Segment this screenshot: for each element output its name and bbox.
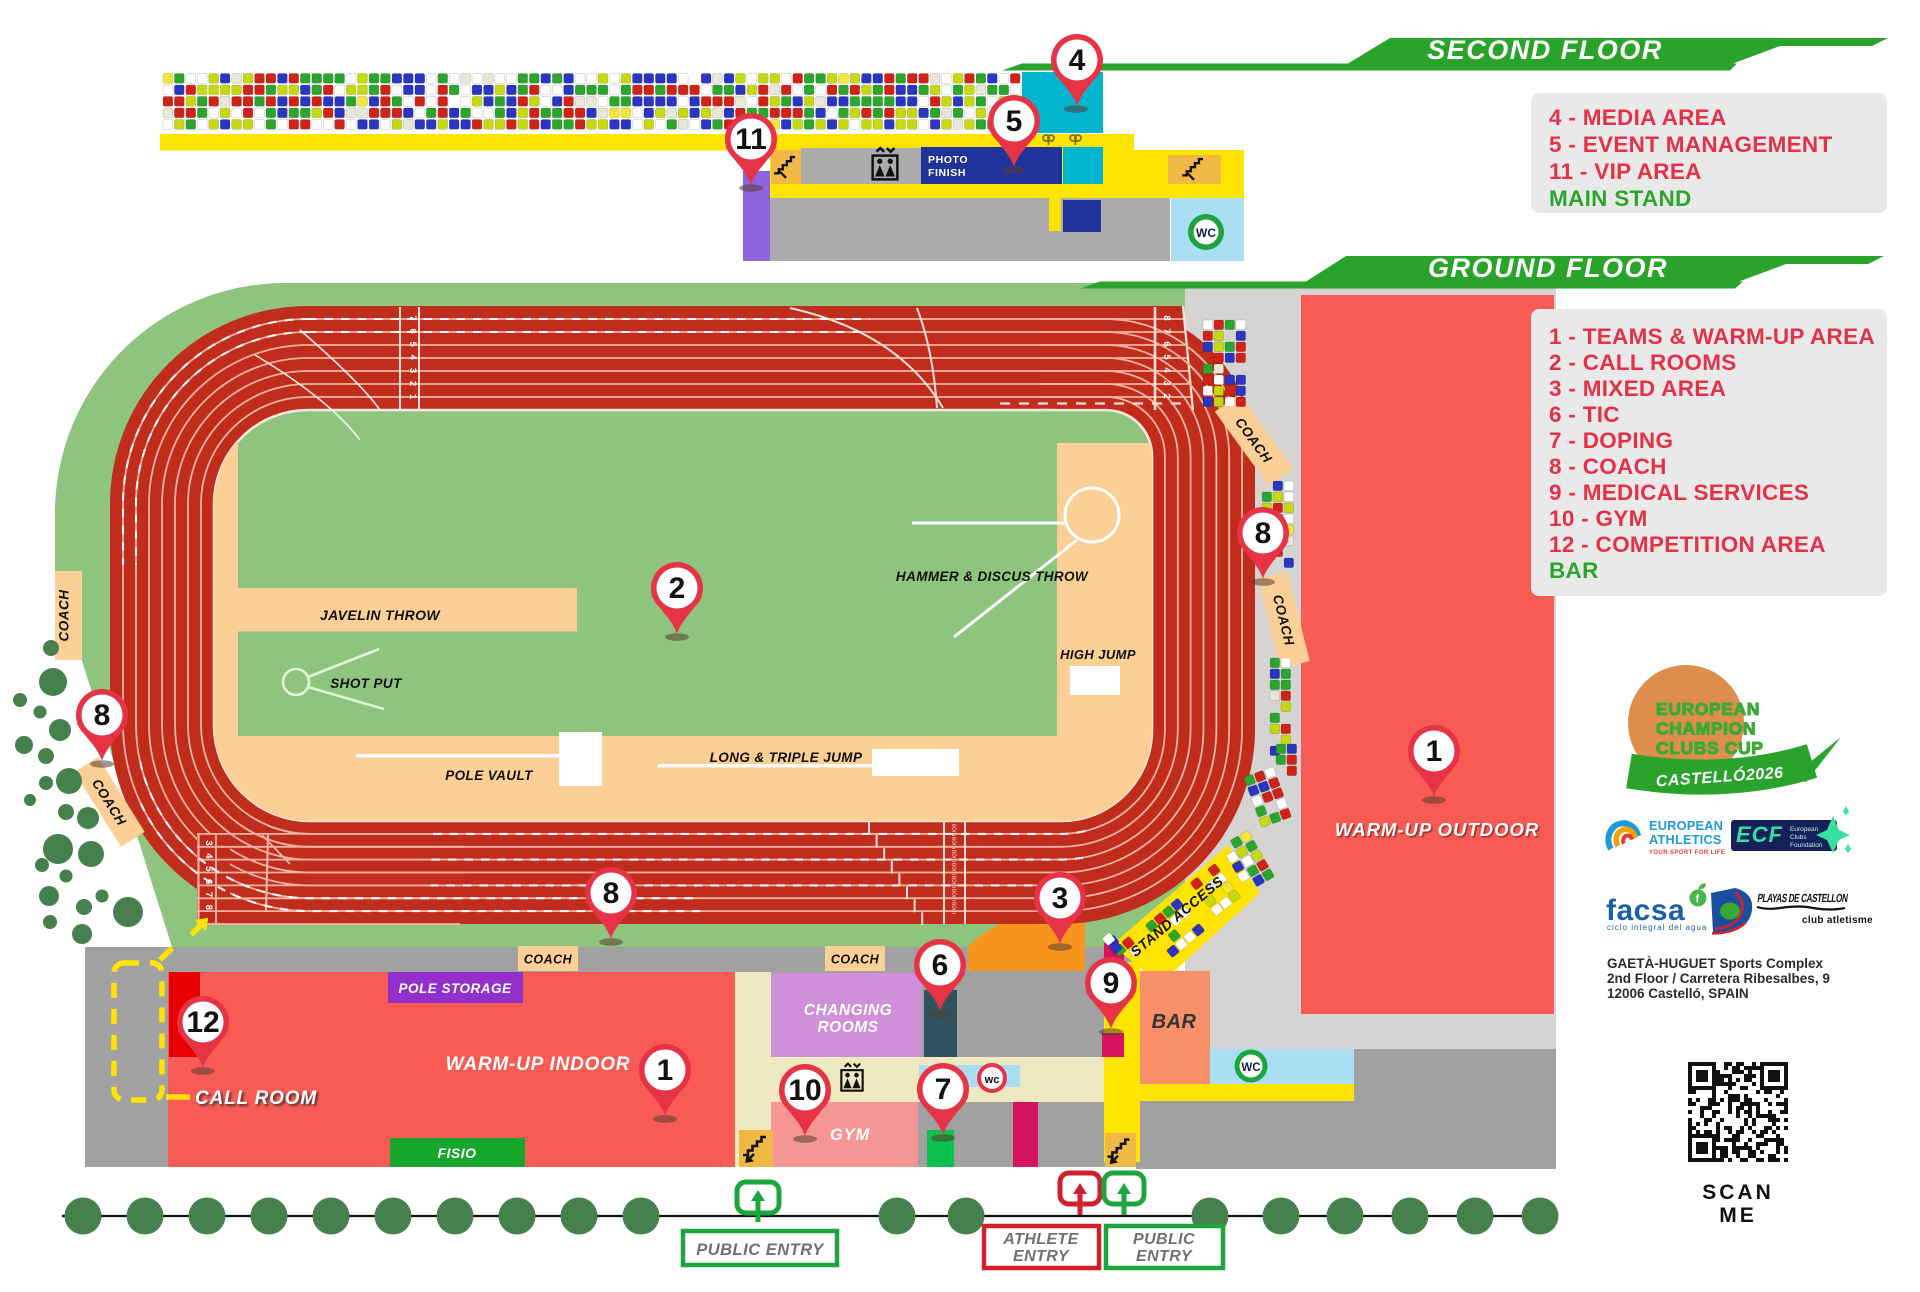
svg-text:1 - TEAMS & WARM-UP AREA: 1 - TEAMS & WARM-UP AREA — [1549, 324, 1875, 349]
svg-text:LONG & TRIPLE JUMP: LONG & TRIPLE JUMP — [710, 750, 863, 765]
svg-text:WC: WC — [1241, 1062, 1260, 1074]
svg-text:1: 1 — [407, 394, 418, 400]
svg-text:5: 5 — [1006, 105, 1023, 138]
svg-text:4: 4 — [1161, 367, 1172, 373]
svg-text:GROUND FLOOR: GROUND FLOOR — [1428, 253, 1668, 283]
svg-text:3: 3 — [1161, 380, 1172, 385]
svg-text:60m: 60m — [950, 889, 957, 902]
svg-text:3: 3 — [1052, 882, 1069, 915]
svg-text:7: 7 — [1161, 328, 1172, 333]
svg-text:60m: 60m — [950, 902, 957, 915]
svg-text:HIGH JUMP: HIGH JUMP — [1060, 647, 1136, 662]
svg-text:5: 5 — [203, 866, 214, 872]
svg-text:6: 6 — [932, 949, 949, 982]
svg-text:SHOT PUT: SHOT PUT — [330, 676, 403, 691]
svg-text:ATHLETICS: ATHLETICS — [1649, 832, 1722, 847]
svg-text:YOUR SPORT FOR LIFE: YOUR SPORT FOR LIFE — [1649, 850, 1725, 856]
svg-text:5 - EVENT MANAGEMENT: 5 - EVENT MANAGEMENT — [1549, 132, 1833, 157]
svg-text:Clubs: Clubs — [1790, 834, 1807, 841]
svg-text:GAETÀ-HUGUET Sports Complex: GAETÀ-HUGUET Sports Complex — [1607, 956, 1824, 971]
svg-text:HAMMER & DISCUS THROW: HAMMER & DISCUS THROW — [896, 569, 1089, 584]
svg-text:4: 4 — [203, 853, 214, 859]
svg-text:WARM-UP INDOOR: WARM-UP INDOOR — [446, 1054, 631, 1075]
svg-text:1: 1 — [657, 1054, 674, 1087]
svg-text:8: 8 — [1161, 315, 1172, 320]
svg-text:60m: 60m — [950, 876, 957, 889]
svg-text:PUBLIC: PUBLIC — [1133, 1231, 1195, 1248]
svg-text:12 - COMPETITION AREA: 12 - COMPETITION AREA — [1549, 532, 1826, 557]
svg-text:5: 5 — [407, 342, 418, 348]
svg-text:CALL ROOM: CALL ROOM — [195, 1088, 317, 1109]
svg-text:6: 6 — [203, 879, 214, 884]
svg-text:8: 8 — [603, 877, 620, 910]
svg-text:6: 6 — [1161, 341, 1172, 346]
svg-text:11 - VIP AREA: 11 - VIP AREA — [1549, 159, 1702, 184]
svg-text:2: 2 — [407, 381, 418, 386]
svg-text:9: 9 — [1103, 967, 1120, 1000]
svg-text:ENTRY: ENTRY — [1013, 1248, 1070, 1265]
svg-text:2nd Floor / Carretera Ribesalb: 2nd Floor / Carretera Ribesalbes, 9 — [1607, 971, 1830, 986]
svg-text:8: 8 — [94, 699, 111, 732]
svg-text:FINISH: FINISH — [928, 167, 966, 179]
svg-text:ECF: ECF — [1736, 822, 1783, 847]
svg-text:CHANGING: CHANGING — [804, 1002, 892, 1019]
svg-text:ME: ME — [1719, 1204, 1757, 1227]
svg-text:4: 4 — [1069, 44, 1086, 77]
svg-text:GYM: GYM — [830, 1126, 870, 1144]
svg-text:EUROPEAN: EUROPEAN — [1656, 699, 1760, 719]
svg-text:ciclo integral del agua: ciclo integral del agua — [1607, 923, 1707, 932]
svg-text:ENTRY: ENTRY — [1136, 1248, 1193, 1265]
svg-text:EUROPEAN: EUROPEAN — [1649, 818, 1723, 833]
svg-text:CHAMPION: CHAMPION — [1656, 719, 1756, 739]
svg-text:2 - CALL ROOMS: 2 - CALL ROOMS — [1549, 350, 1737, 375]
svg-text:COACH: COACH — [57, 590, 72, 642]
svg-text:60m: 60m — [950, 850, 957, 863]
svg-text:7: 7 — [935, 1073, 952, 1106]
svg-text:1: 1 — [1426, 735, 1443, 768]
svg-text:2: 2 — [669, 572, 686, 605]
svg-text:COACH: COACH — [524, 953, 573, 967]
svg-text:8: 8 — [203, 905, 214, 910]
svg-text:f: f — [1696, 894, 1700, 906]
svg-text:3: 3 — [407, 368, 418, 373]
svg-text:PLAYAS DE CASTELLON: PLAYAS DE CASTELLON — [1757, 891, 1849, 905]
svg-text:WC: WC — [1196, 226, 1216, 240]
svg-text:60m: 60m — [950, 837, 957, 850]
svg-text:PHOTO: PHOTO — [928, 154, 968, 166]
svg-text:club atletisme: club atletisme — [1802, 915, 1873, 926]
svg-text:60m: 60m — [950, 824, 957, 837]
svg-text:5: 5 — [1161, 354, 1172, 360]
svg-text:6: 6 — [407, 328, 418, 333]
svg-text:FISIO: FISIO — [437, 1145, 476, 1161]
svg-text:12: 12 — [186, 1006, 219, 1039]
svg-text:wc: wc — [984, 1074, 1000, 1086]
svg-text:SECOND FLOOR: SECOND FLOOR — [1427, 35, 1663, 65]
svg-text:7 - DOPING: 7 - DOPING — [1549, 428, 1673, 453]
svg-text:BAR: BAR — [1549, 558, 1599, 583]
svg-text:10 - GYM: 10 - GYM — [1549, 506, 1648, 531]
svg-text:JAVELIN THROW: JAVELIN THROW — [320, 607, 441, 623]
svg-text:7: 7 — [203, 892, 214, 897]
svg-text:SCAN: SCAN — [1702, 1181, 1774, 1204]
svg-text:3: 3 — [203, 840, 214, 845]
svg-text:CLUBS CUP: CLUBS CUP — [1656, 738, 1764, 758]
svg-text:6 - TIC: 6 - TIC — [1549, 402, 1620, 427]
svg-text:MAIN STAND: MAIN STAND — [1549, 186, 1692, 211]
svg-text:PUBLIC ENTRY: PUBLIC ENTRY — [696, 1241, 825, 1259]
svg-text:ROOMS: ROOMS — [817, 1019, 878, 1036]
svg-text:COACH: COACH — [831, 953, 880, 967]
svg-text:12006 Castelló, SPAIN: 12006 Castelló, SPAIN — [1607, 986, 1749, 1001]
svg-text:Foundation: Foundation — [1790, 842, 1823, 849]
svg-text:2: 2 — [1161, 393, 1172, 398]
svg-text:BAR: BAR — [1152, 1011, 1197, 1033]
svg-text:POLE VAULT: POLE VAULT — [445, 768, 534, 783]
svg-text:7: 7 — [407, 315, 418, 320]
svg-text:10: 10 — [788, 1074, 821, 1107]
svg-text:ATHLETE: ATHLETE — [1002, 1231, 1079, 1248]
svg-text:8: 8 — [1255, 517, 1272, 550]
svg-text:European: European — [1790, 826, 1819, 833]
svg-text:9 - MEDICAL SERVICES: 9 - MEDICAL SERVICES — [1549, 480, 1809, 505]
svg-text:WARM-UP OUTDOOR: WARM-UP OUTDOOR — [1335, 819, 1539, 840]
svg-text:11: 11 — [735, 123, 767, 156]
svg-text:POLE STORAGE: POLE STORAGE — [398, 981, 512, 996]
svg-text:8 - COACH: 8 - COACH — [1549, 454, 1667, 479]
svg-text:4: 4 — [407, 355, 418, 361]
svg-text:60m: 60m — [950, 863, 957, 876]
svg-text:4 - MEDIA AREA: 4 - MEDIA AREA — [1549, 105, 1727, 130]
svg-text:3 - MIXED AREA: 3 - MIXED AREA — [1549, 376, 1726, 401]
